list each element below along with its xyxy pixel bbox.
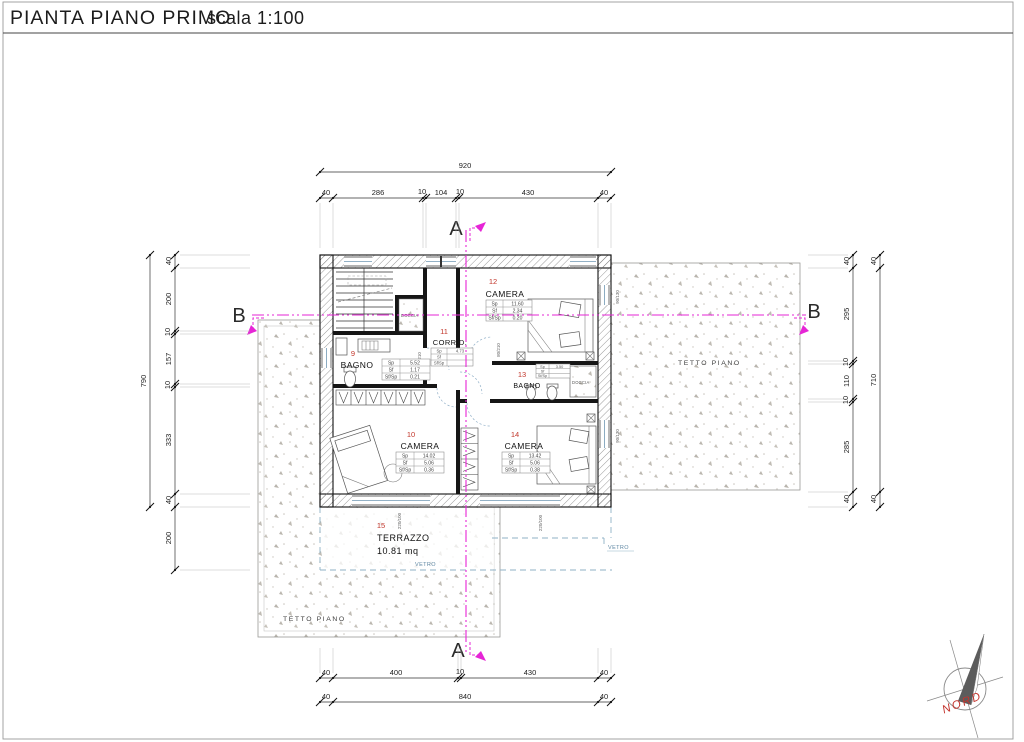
svg-text:2.34: 2.34 bbox=[513, 308, 523, 314]
svg-text:40: 40 bbox=[322, 668, 330, 677]
svg-text:40: 40 bbox=[869, 257, 878, 265]
window-stairs-top bbox=[344, 256, 372, 267]
door-tag-right: 80/210 bbox=[496, 343, 501, 357]
dimensions-right: 40 295 10 110 10 285 40 40 710 40 bbox=[808, 251, 884, 511]
page-title-scale: scala 1:100 bbox=[207, 8, 305, 28]
camera12-number: 12 bbox=[489, 277, 497, 286]
svg-text:285: 285 bbox=[842, 441, 851, 454]
svg-text:40: 40 bbox=[322, 188, 330, 197]
svg-text:1.17: 1.17 bbox=[410, 367, 420, 373]
svg-text:10: 10 bbox=[456, 667, 464, 676]
svg-text:200: 200 bbox=[164, 532, 173, 545]
bagno13-number: 13 bbox=[518, 370, 526, 379]
svg-text:Sf/Sp: Sf/Sp bbox=[434, 361, 445, 366]
svg-text:4.73: 4.73 bbox=[456, 349, 465, 354]
tetto-piano-left-label: TETTO PIANO bbox=[283, 616, 346, 623]
dimensions-bottom: 40 400 10 430 40 40 840 40 bbox=[316, 648, 615, 706]
glass-tag-right: 220/100 bbox=[538, 514, 543, 531]
roof-slab-right bbox=[611, 263, 800, 490]
svg-text:40: 40 bbox=[842, 495, 851, 503]
svg-text:Sf/Sp: Sf/Sp bbox=[488, 315, 500, 321]
camera14-number: 14 bbox=[511, 430, 519, 439]
window-tag-right-top: 90/130 bbox=[615, 290, 620, 304]
dimensions-left: 790 40 200 10 157 10 333 40 200 bbox=[139, 251, 250, 574]
svg-text:Sf: Sf bbox=[389, 367, 394, 373]
svg-text:5.52: 5.52 bbox=[410, 360, 420, 366]
svg-text:Sp: Sp bbox=[436, 349, 442, 354]
area-table-camera12: Sp 11.60 Sf 2.34 Sf/Sp 0.20 bbox=[486, 300, 532, 321]
svg-text:10: 10 bbox=[456, 187, 464, 196]
terrazzo-name: TERRAZZO bbox=[377, 533, 430, 543]
svg-text:10: 10 bbox=[841, 358, 850, 366]
area-table-camera14: Sp 13.42 Sf 5.06 Sf/Sp 0.38 bbox=[502, 452, 550, 473]
svg-text:Sp: Sp bbox=[508, 453, 514, 459]
window-corridor-top bbox=[426, 256, 456, 267]
bagno9-number: 9 bbox=[351, 349, 355, 358]
svg-text:430: 430 bbox=[524, 668, 537, 677]
svg-text:400: 400 bbox=[390, 668, 403, 677]
camera10-name: CAMERA bbox=[401, 441, 440, 451]
terrace: 15 TERRAZZO 10.81 mq VETRO VETRO bbox=[320, 507, 634, 570]
corridoio-name: CORRID. bbox=[433, 338, 467, 347]
svg-text:Sf: Sf bbox=[492, 308, 497, 314]
svg-text:40: 40 bbox=[164, 496, 173, 504]
dim-top-total: 920 bbox=[459, 161, 472, 170]
svg-text:40: 40 bbox=[322, 692, 330, 701]
svg-text:Sp: Sp bbox=[540, 365, 545, 369]
svg-text:Sp: Sp bbox=[388, 360, 394, 366]
camera12-name: CAMERA bbox=[486, 289, 525, 299]
glass-tag-left: 220/100 bbox=[397, 512, 402, 529]
window-bagno9-left bbox=[321, 348, 333, 368]
svg-text:5.06: 5.06 bbox=[424, 460, 434, 466]
section-a-bottom-label: A bbox=[451, 640, 465, 662]
area-table-camera10: Sp 14.02 Sf 5.06 Sf/Sp 0.36 bbox=[396, 452, 444, 473]
section-b-left-label: B bbox=[232, 305, 245, 327]
svg-text:Sf/Sp: Sf/Sp bbox=[399, 467, 411, 473]
svg-text:710: 710 bbox=[869, 374, 878, 387]
section-a-top-label: A bbox=[449, 218, 463, 240]
window-tag-right-bottom: 90/130 bbox=[615, 429, 620, 443]
svg-text:14.02: 14.02 bbox=[423, 453, 436, 459]
svg-text:40: 40 bbox=[600, 188, 608, 197]
svg-text:Sf/Sp: Sf/Sp bbox=[505, 467, 517, 473]
svg-text:295: 295 bbox=[842, 308, 851, 321]
svg-text:286: 286 bbox=[372, 188, 385, 197]
area-table-corridoio: Sp 4.73 Sf Sf/Sp bbox=[431, 348, 473, 366]
area-table-bagno13: Sp 3.50 Sf Sf/Sp bbox=[536, 364, 570, 378]
svg-text:0.36: 0.36 bbox=[424, 467, 434, 473]
vetro-right-label: VETRO bbox=[608, 545, 629, 551]
svg-text:157: 157 bbox=[164, 353, 173, 366]
glass-door-terrace-right bbox=[480, 495, 560, 507]
svg-text:10: 10 bbox=[163, 381, 172, 389]
svg-text:104: 104 bbox=[435, 188, 448, 197]
svg-text:840: 840 bbox=[459, 692, 472, 701]
terrazzo-area: 10.81 mq bbox=[377, 546, 419, 556]
svg-text:10: 10 bbox=[418, 187, 426, 196]
svg-text:200: 200 bbox=[164, 293, 173, 306]
svg-text:13.42: 13.42 bbox=[529, 453, 542, 459]
svg-text:40: 40 bbox=[600, 692, 608, 701]
svg-text:Sf/Sp: Sf/Sp bbox=[385, 374, 397, 380]
svg-text:Sf: Sf bbox=[509, 460, 514, 466]
floor-plan-sheet: PIANTA PIANO PRIMO scala 1:100 TETTO PIA… bbox=[0, 0, 1024, 742]
dim-left-total: 790 bbox=[139, 375, 148, 388]
svg-text:40: 40 bbox=[842, 257, 851, 265]
window-camera14-right bbox=[599, 420, 611, 448]
north-compass: NORD bbox=[927, 634, 1003, 738]
svg-text:430: 430 bbox=[522, 188, 535, 197]
svg-text:3.50: 3.50 bbox=[556, 365, 563, 369]
svg-text:5.06: 5.06 bbox=[530, 460, 540, 466]
svg-text:Sp: Sp bbox=[402, 453, 408, 459]
svg-text:0.38: 0.38 bbox=[530, 467, 540, 473]
svg-text:11.60: 11.60 bbox=[511, 301, 523, 307]
svg-text:Sf/Sp: Sf/Sp bbox=[538, 374, 547, 378]
svg-text:10: 10 bbox=[841, 396, 850, 404]
floor-plan-drawing: PIANTA PIANO PRIMO scala 1:100 TETTO PIA… bbox=[0, 0, 1024, 742]
svg-text:Sp: Sp bbox=[491, 301, 497, 307]
svg-text:333: 333 bbox=[164, 434, 173, 447]
svg-text:110: 110 bbox=[842, 375, 851, 387]
svg-text:0.20: 0.20 bbox=[513, 315, 523, 321]
glass-door-terrace-left bbox=[352, 495, 430, 507]
terrazzo-number: 15 bbox=[377, 521, 385, 530]
vetro-front-label: VETRO bbox=[415, 562, 436, 568]
doccia-bagno13-label: DOCCIA bbox=[572, 380, 590, 385]
svg-text:Sf: Sf bbox=[403, 460, 408, 466]
section-b-right-label: B bbox=[807, 301, 820, 323]
tetto-piano-right-label: TETTO PIANO bbox=[678, 360, 741, 367]
camera10-number: 10 bbox=[407, 430, 415, 439]
window-camera12-top bbox=[570, 256, 596, 267]
camera14-name: CAMERA bbox=[505, 441, 544, 451]
svg-text:40: 40 bbox=[164, 257, 173, 265]
svg-text:40: 40 bbox=[869, 495, 878, 503]
corridoio-number: 11 bbox=[440, 327, 448, 336]
svg-text:0.21: 0.21 bbox=[410, 374, 420, 380]
svg-text:40: 40 bbox=[600, 668, 608, 677]
window-camera12-right bbox=[599, 285, 611, 305]
page-title: PIANTA PIANO PRIMO bbox=[10, 7, 231, 29]
area-table-bagno9: Sp 5.52 Sf 1.17 Sf/Sp 0.21 bbox=[382, 359, 430, 380]
svg-text:10: 10 bbox=[163, 328, 172, 336]
bagno9-name: BAGNO bbox=[341, 360, 374, 370]
bagno13-name: BAGNO bbox=[513, 383, 540, 390]
